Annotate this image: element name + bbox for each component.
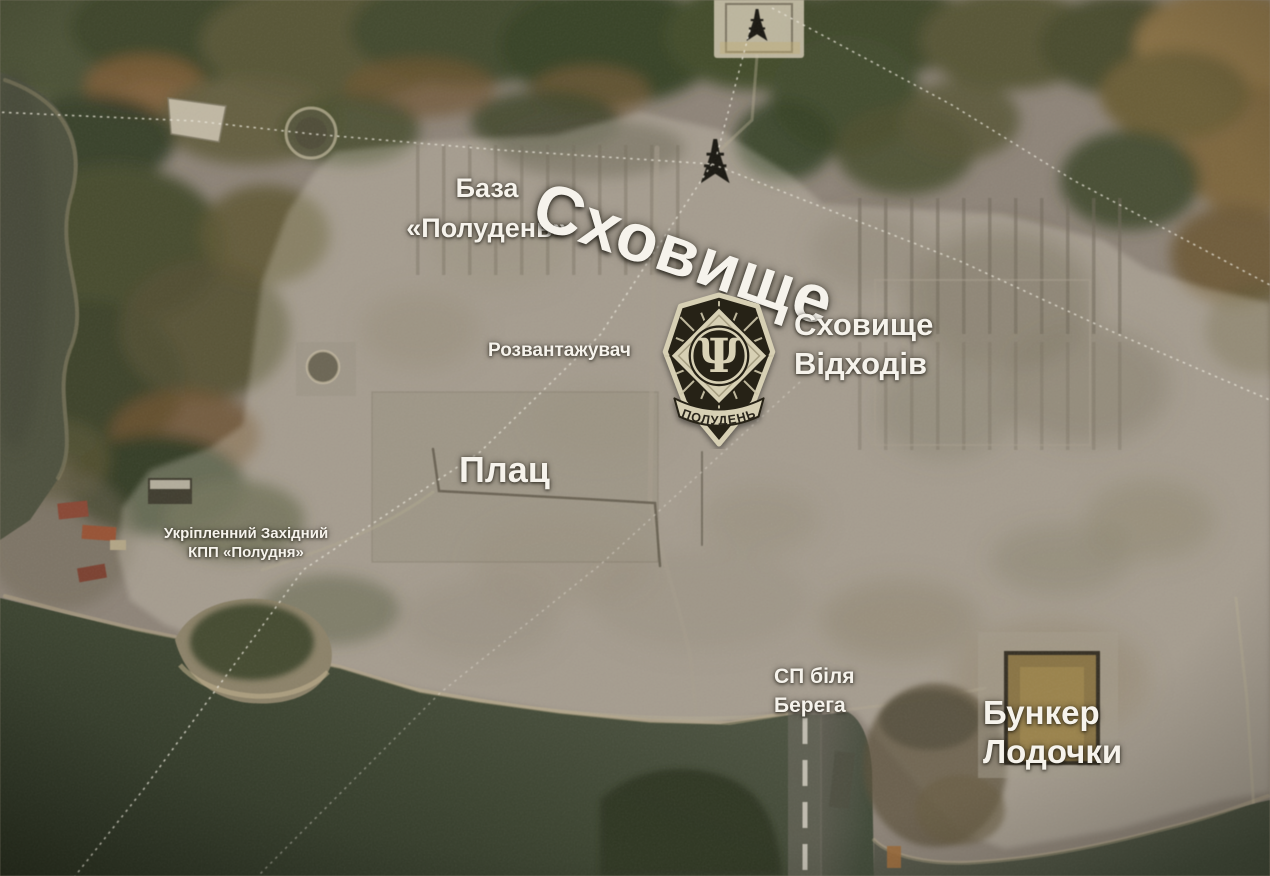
- label-shore-post: СП біля Берега: [774, 662, 855, 720]
- label-line: Лодочки: [983, 732, 1122, 771]
- label-west-checkpoint: Укріпленний Західний КПП «Полудня»: [164, 524, 328, 562]
- label-line: Берега: [774, 691, 855, 720]
- label-line: КПП «Полудня»: [164, 543, 328, 562]
- label-line: СП біля: [774, 662, 855, 691]
- label-line: Сховище: [794, 305, 933, 344]
- label-line: Бункер: [983, 693, 1122, 732]
- label-parade-ground: Плац: [459, 449, 550, 491]
- game-map-viewport[interactable]: База «Полудень» Сховище Розвантажувач Сх…: [0, 0, 1270, 876]
- label-line: Укріпленний Західний: [164, 524, 328, 543]
- label-unloader: Розвантажувач: [488, 340, 631, 362]
- label-boat-bunker: Бункер Лодочки: [983, 693, 1122, 771]
- label-waste-storage: Сховище Відходів: [794, 305, 933, 383]
- poluden-faction-emblem-icon: Ψ ПОЛУДЕНЬ: [656, 291, 782, 449]
- emblem-psi-symbol: Ψ: [698, 328, 741, 383]
- label-line: Відходів: [794, 344, 933, 383]
